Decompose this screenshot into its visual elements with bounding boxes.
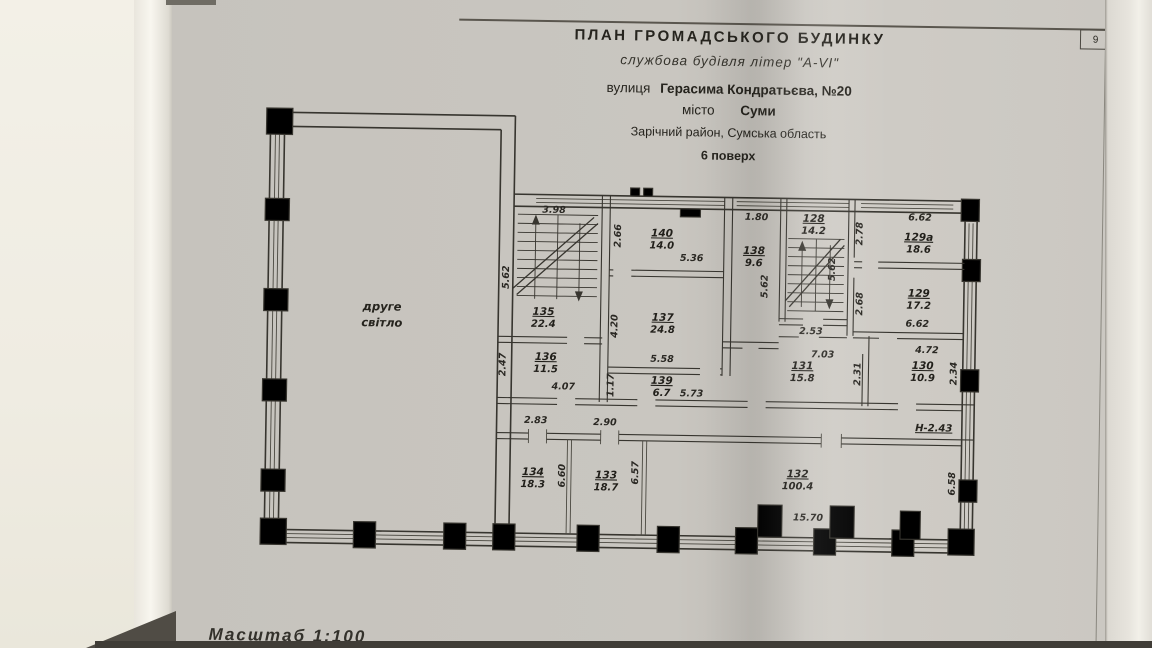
dim-room129a-top: 6.62: [908, 212, 932, 223]
room-132-number: 132: [787, 468, 809, 480]
document-content: 9 ПЛАН ГРОМАДСЬКОГО БУДИНКУ службова буд…: [172, 0, 1105, 648]
room-132-area: 100.4: [782, 481, 814, 492]
dim-room136-bottom: 4.07: [551, 381, 576, 392]
room-129a-number: 129а: [904, 231, 933, 243]
dim-room138-top: 1.80: [745, 212, 769, 223]
stair-up-arrow: [801, 247, 802, 307]
room-133-number: 133: [595, 469, 617, 481]
stair-135: [513, 214, 599, 302]
room-140-area: 14.0: [649, 240, 674, 251]
room-129-area: 17.2: [906, 301, 931, 312]
arrow-up-icon: [532, 214, 540, 224]
room-128-number: 128: [803, 213, 825, 225]
room-135-number: 135: [532, 306, 554, 318]
room-129-number: 129: [908, 288, 930, 300]
room-136-number: 136: [535, 351, 557, 363]
room-136-area: 11.5: [533, 364, 558, 375]
room-134-area: 18.3: [520, 479, 545, 490]
dim-room132-right: 6.58: [947, 472, 958, 496]
dim-room140-left: 2.66: [613, 224, 624, 248]
page-number-box: 9: [1080, 29, 1105, 49]
dim-room129-left: 2.68: [854, 292, 865, 316]
room-139-area: 6.7: [653, 388, 671, 399]
room-128-area: 14.2: [801, 226, 826, 237]
dim-room129-bottom: 6.62: [906, 319, 930, 330]
room-134-number: 134: [522, 466, 544, 478]
document-page: 9 ПЛАН ГРОМАДСЬКОГО БУДИНКУ службова буд…: [172, 0, 1105, 648]
room-137-area: 24.8: [650, 325, 675, 336]
dim-room130-right: 2.34: [949, 361, 960, 385]
dim-stair135-left: 5.62: [501, 265, 512, 289]
exterior-walls: [264, 112, 979, 553]
room-137-number: 137: [652, 312, 675, 324]
dim-room129a-left: 2.78: [854, 221, 865, 245]
dim-room137-bottom: 5.58: [650, 354, 674, 365]
photo-bottom-edge: [95, 641, 1152, 648]
arrow-down-icon: [825, 299, 833, 309]
dim-corridor-a: 2.83: [524, 415, 548, 426]
dim-corridor-b: 2.90: [593, 417, 617, 428]
street-label: вулиця: [606, 80, 650, 96]
dim-stair128-inner: 5.62: [827, 257, 838, 281]
building-subtitle: службова будівля літер "А-VI": [564, 51, 896, 71]
dim-room131-right: 2.31: [852, 362, 863, 386]
frame-right-line: [1095, 29, 1105, 648]
photo-right-edge: [1105, 0, 1152, 648]
dim-room138-height: 5.62: [759, 274, 770, 298]
floor-plan: друге світло 135 22.4 140 14.0 138 9.6 1…: [258, 98, 987, 571]
stair-down-arrow: [579, 223, 580, 295]
page-left-edge: [134, 0, 176, 648]
dim-room139-left: 1.17: [605, 373, 616, 397]
room-130-number: 130: [912, 360, 934, 372]
dim-stair135-top: 3.98: [542, 205, 566, 216]
stair-break-line: [513, 216, 598, 296]
room-138-area: 9.6: [745, 258, 763, 269]
dim-room133-height: 6.57: [630, 461, 641, 485]
dim-room132-bottom: 15.70: [793, 512, 824, 523]
room-131-area: 15.8: [790, 373, 815, 384]
page-number: 9: [1093, 34, 1099, 45]
room-138-number: 138: [743, 245, 765, 257]
street-line: вулиця Герасима Кондратьєва, №20: [563, 79, 895, 99]
room-139-number: 139: [651, 375, 673, 387]
street-value: Герасима Кондратьєва, №20: [660, 81, 852, 99]
room-135-area: 22.4: [531, 319, 556, 330]
dim-room134-height: 6.60: [557, 463, 568, 487]
arrow-up-icon: [798, 241, 806, 251]
dim-room140-width: 5.36: [680, 253, 704, 264]
table-surface: [0, 0, 152, 648]
room-140-number: 140: [651, 227, 673, 239]
dim-room131-top: 7.03: [811, 349, 835, 360]
room-130-area: 10.9: [910, 373, 935, 384]
room-131-number: 131: [791, 360, 813, 372]
dim-stair128-bottom: 2.53: [799, 326, 823, 337]
top-edge-mark: [166, 0, 216, 5]
dim-room139-right: 5.73: [680, 388, 704, 399]
room-labels: друге світло 135 22.4 140 14.0 138 9.6 1…: [359, 206, 956, 499]
void-area-label-2: світло: [361, 315, 402, 330]
room-133-area: 18.7: [593, 482, 618, 493]
plan-title: ПЛАН ГРОМАДСЬКОГО БУДИНКУ: [564, 26, 896, 48]
dim-room136-left: 2.47: [497, 352, 508, 376]
height-note: Н-2.43: [915, 423, 952, 435]
room-129a-area: 18.6: [906, 244, 931, 255]
dim-room130-top: 4.72: [914, 345, 939, 356]
photo-stage: 9 ПЛАН ГРОМАДСЬКОГО БУДИНКУ службова буд…: [0, 0, 1152, 648]
void-area-label-1: друге: [362, 299, 402, 314]
dim-room137-left: 4.20: [609, 314, 620, 339]
